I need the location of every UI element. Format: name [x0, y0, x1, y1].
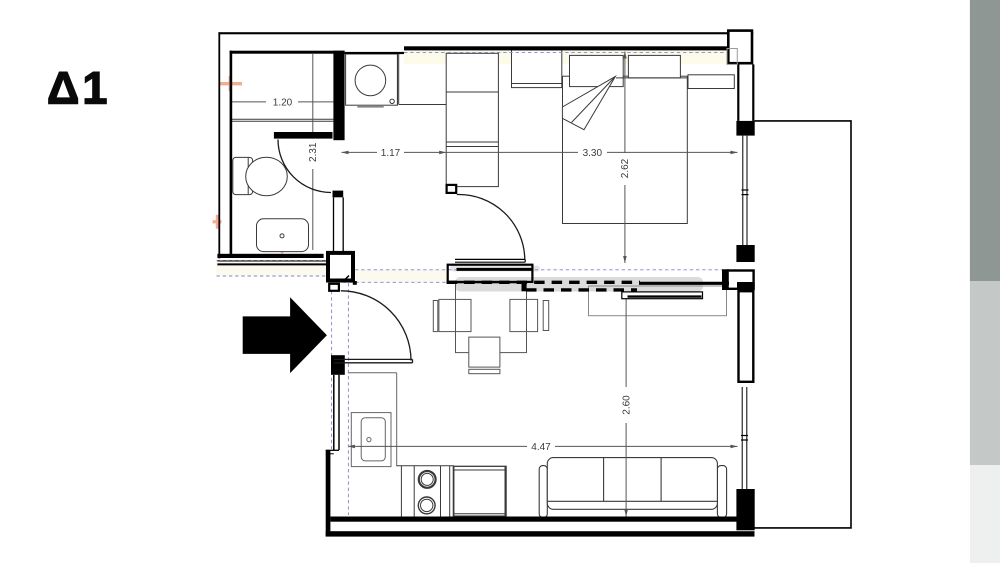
svg-text:4.47: 4.47: [531, 442, 551, 453]
svg-text:1.20: 1.20: [273, 97, 293, 108]
svg-text:2.62: 2.62: [620, 158, 631, 178]
svg-text:2.31: 2.31: [308, 142, 319, 162]
svg-text:Δ1: Δ1: [47, 63, 110, 114]
svg-text:2.60: 2.60: [621, 395, 632, 415]
svg-text:3.30: 3.30: [583, 148, 603, 159]
svg-text:1.17: 1.17: [381, 148, 401, 159]
